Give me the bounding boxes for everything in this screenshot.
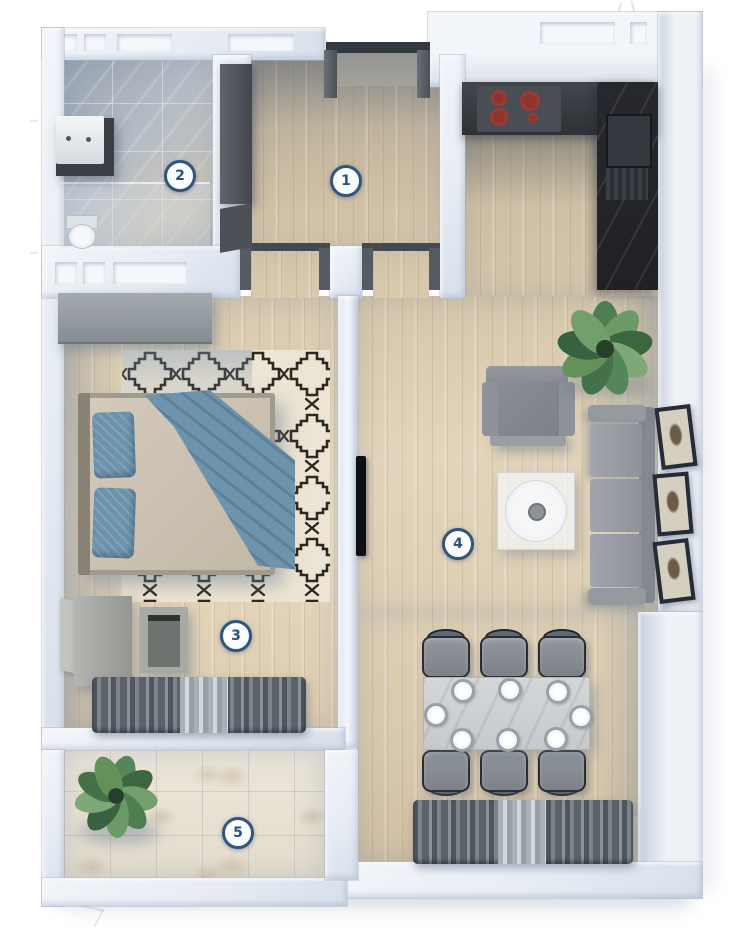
place-setting-plate: [424, 703, 448, 727]
living-room-curtains: [413, 800, 633, 864]
bedside-pouf-top: [148, 615, 180, 667]
potted-plant: [550, 300, 660, 398]
art-print: [661, 547, 686, 595]
room-number: 1: [341, 173, 351, 189]
place-setting-plate: [498, 678, 522, 702]
chair-seat: [538, 750, 586, 792]
entrance-door-lintel: [326, 42, 430, 53]
wall-niche: [228, 34, 294, 51]
place-setting-plate: [569, 705, 593, 729]
doorway-floor: [373, 246, 429, 298]
balcony-plant: [68, 750, 164, 842]
dining-chair: [419, 629, 471, 677]
sofa-cushion: [590, 534, 642, 587]
dresser: [74, 596, 132, 686]
curtain-light-panel: [498, 800, 546, 864]
wall-art-frame: [654, 404, 697, 470]
wall-art-frame: [652, 538, 695, 604]
wall-niche: [55, 262, 77, 284]
vanity-sink: [56, 116, 104, 164]
wall-art-frame: [652, 472, 693, 537]
dining-chair: [535, 748, 587, 796]
stove-burner: [528, 113, 538, 123]
stove-burner: [491, 90, 507, 106]
hallway-wardrobe: [220, 64, 252, 204]
room-badge-hallway: 1: [330, 165, 362, 197]
wall-balcony-right: [325, 750, 358, 880]
room-number: 5: [233, 825, 243, 841]
floor-plan-scene: 1 2 3 4 5: [0, 0, 735, 952]
wall-bottom-living: [345, 862, 702, 898]
wall-niche: [630, 22, 647, 44]
toilet-bowl: [68, 224, 96, 249]
tv-wall-mounted: [356, 456, 366, 556]
place-setting-plate: [496, 728, 520, 752]
sofa: [588, 405, 655, 605]
wall-niche: [540, 22, 615, 44]
place-setting-plate: [546, 680, 570, 704]
door-jamb: [362, 248, 373, 290]
bedroom-curtains: [92, 677, 306, 733]
sofa-armrest: [588, 588, 646, 605]
faucet-dot: [86, 137, 91, 142]
wall-niche: [84, 34, 106, 51]
room-number: 3: [231, 628, 241, 644]
stove-burner: [490, 108, 508, 126]
wall-niche: [113, 262, 187, 284]
kitchen-sink-basin: [606, 114, 652, 168]
wall-balcony-bottom: [42, 878, 347, 906]
chair-seat: [538, 636, 586, 678]
wall-right-lower: [638, 612, 702, 898]
sofa-armrest: [588, 405, 646, 422]
dining-chair: [477, 629, 529, 677]
room-badge-balcony: 5: [222, 817, 254, 849]
room-badge-bedroom: 3: [220, 620, 252, 652]
door-jamb: [319, 248, 330, 290]
chair-seat: [422, 750, 470, 792]
dining-chair: [419, 748, 471, 796]
doorway-floor: [251, 246, 319, 298]
background-sketch-mark: [93, 909, 104, 928]
wall-niche: [117, 34, 172, 51]
door-jamb: [429, 248, 440, 290]
room-number: 4: [453, 536, 463, 552]
chair-seat: [480, 750, 528, 792]
kitchen-sink-drainboard: [606, 168, 648, 200]
bed-pillow: [92, 487, 136, 558]
room-number: 2: [175, 168, 185, 184]
stove-cooktop: [477, 86, 561, 132]
room-badge-living-room: 4: [442, 528, 474, 560]
armchair-arm: [482, 382, 498, 436]
tray-ornament: [528, 503, 546, 521]
door-lintel: [240, 243, 330, 251]
faucet-dot: [66, 136, 71, 141]
sofa-cushion: [590, 424, 642, 477]
art-print: [661, 480, 685, 528]
background-sketch-mark: [30, 120, 38, 122]
stove-burner: [520, 91, 540, 111]
entrance-door-jamb: [417, 50, 430, 98]
chair-seat: [480, 636, 528, 678]
wall-between-doors: [330, 246, 362, 298]
place-setting-plate: [544, 727, 568, 751]
bed-headboard: [78, 393, 90, 575]
art-print: [663, 413, 688, 461]
place-setting-plate: [450, 728, 474, 752]
entrance-door-jamb: [324, 50, 337, 98]
dining-chair: [535, 629, 587, 677]
chair-seat: [422, 636, 470, 678]
wall-central: [338, 296, 358, 748]
hallway-cabinet: [220, 203, 252, 253]
room-badge-bathroom: 2: [164, 160, 196, 192]
dining-chair: [477, 748, 529, 796]
bed-pillow: [92, 411, 136, 478]
door-jamb: [240, 248, 251, 290]
background-sketch-mark: [30, 252, 38, 254]
wall-niche: [83, 262, 105, 284]
curtain-light-panel: [180, 677, 228, 733]
sofa-cushion: [590, 479, 642, 532]
bedroom-wardrobe: [58, 293, 212, 344]
place-setting-plate: [451, 679, 475, 703]
